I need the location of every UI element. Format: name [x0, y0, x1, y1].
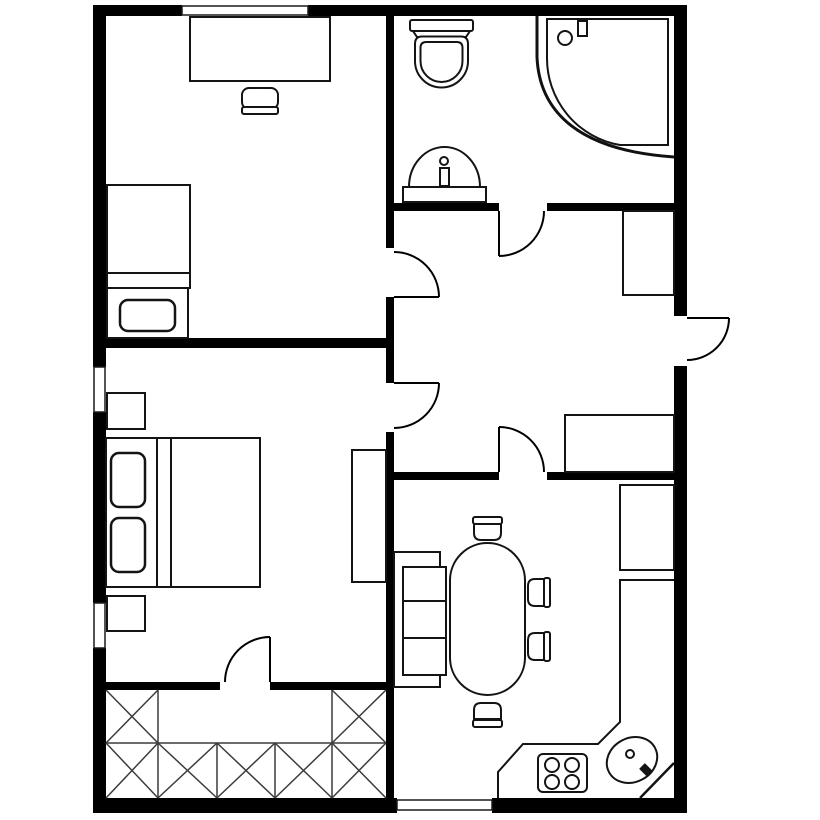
- left-wall-upper: [93, 5, 106, 367]
- right-wall-upper: [674, 5, 687, 316]
- single-bed-pillow: [120, 300, 175, 331]
- nightstand-2: [107, 596, 145, 631]
- nightstand-1: [107, 393, 145, 429]
- sofa-seat: [403, 567, 446, 675]
- chair-top-seat: [474, 524, 501, 540]
- middle-wall-lower: [386, 432, 394, 798]
- window-left-upper: [94, 367, 105, 412]
- kitchen-wall-left: [394, 472, 499, 480]
- storage-hatch-x: [106, 690, 386, 798]
- desk: [190, 17, 330, 81]
- storage-wall-left: [106, 682, 220, 690]
- kitchen-sink-faucet: [642, 766, 650, 774]
- window-bottom: [397, 800, 492, 810]
- window-left-lower: [94, 603, 105, 648]
- stove-burner-3: [545, 775, 559, 789]
- top-wall-right: [308, 5, 687, 16]
- hall-closet-2: [565, 415, 674, 472]
- entry-door-arc: [687, 318, 729, 360]
- wardrobe: [352, 450, 386, 582]
- single-bed-mattress: [107, 185, 190, 273]
- left-wall-middle: [93, 412, 106, 603]
- storage-wall-right: [270, 682, 386, 690]
- stove-burner-1: [545, 758, 559, 772]
- bottom-wall-right: [492, 798, 687, 813]
- shower-handle: [578, 21, 587, 36]
- top-wall-left: [93, 5, 182, 16]
- single-bed-fold: [107, 273, 190, 288]
- dining-table: [450, 543, 525, 695]
- window-top: [182, 6, 308, 15]
- chair-top-back: [473, 517, 502, 524]
- bathroom-sink-base: [403, 187, 486, 202]
- bathroom-sink-faucet: [440, 168, 449, 186]
- right-wall-lower: [674, 366, 687, 813]
- chair-bottom-back: [473, 720, 502, 727]
- toilet-tank: [410, 20, 473, 31]
- kitchen-door-arc: [499, 427, 544, 472]
- bathroom-door-arc: [499, 211, 544, 256]
- middle-wall-mid: [386, 297, 394, 383]
- floorplan-page: [0, 0, 820, 820]
- kitchen-counter-upper: [620, 485, 674, 570]
- bathroom-wall-left: [386, 203, 499, 211]
- kitchen-wall-right: [547, 472, 674, 480]
- desk-chair-back: [242, 107, 278, 114]
- toilet-bowl-inner: [421, 42, 463, 82]
- stove-burner-4: [565, 775, 579, 789]
- shower-drain: [558, 31, 572, 45]
- hall-closet-1: [623, 211, 674, 295]
- double-bed-pillow-1: [111, 453, 145, 507]
- bottom-wall-left: [93, 798, 397, 813]
- floorplan-svg: [0, 0, 820, 820]
- stove-burner-2: [565, 758, 579, 772]
- desk-chair-seat: [242, 88, 278, 109]
- kitchen-sink-drain: [626, 750, 634, 758]
- bedroom1-door-arc: [394, 252, 439, 297]
- left-wall-lower: [93, 648, 106, 813]
- storage-door-arc: [225, 637, 270, 682]
- middle-wall-upper: [386, 16, 394, 248]
- bedroom2-door-arc: [394, 383, 439, 428]
- bathroom-sink-drain: [440, 157, 448, 165]
- double-bed-pillow-2: [111, 518, 145, 572]
- storage-grid-lines: [106, 690, 386, 798]
- chair-right-1-seat: [528, 579, 544, 606]
- bedroom-divider-wall: [106, 338, 386, 348]
- chair-bottom-seat: [474, 703, 501, 719]
- chair-right-2-seat: [528, 633, 544, 660]
- bathroom-wall-right: [547, 203, 674, 211]
